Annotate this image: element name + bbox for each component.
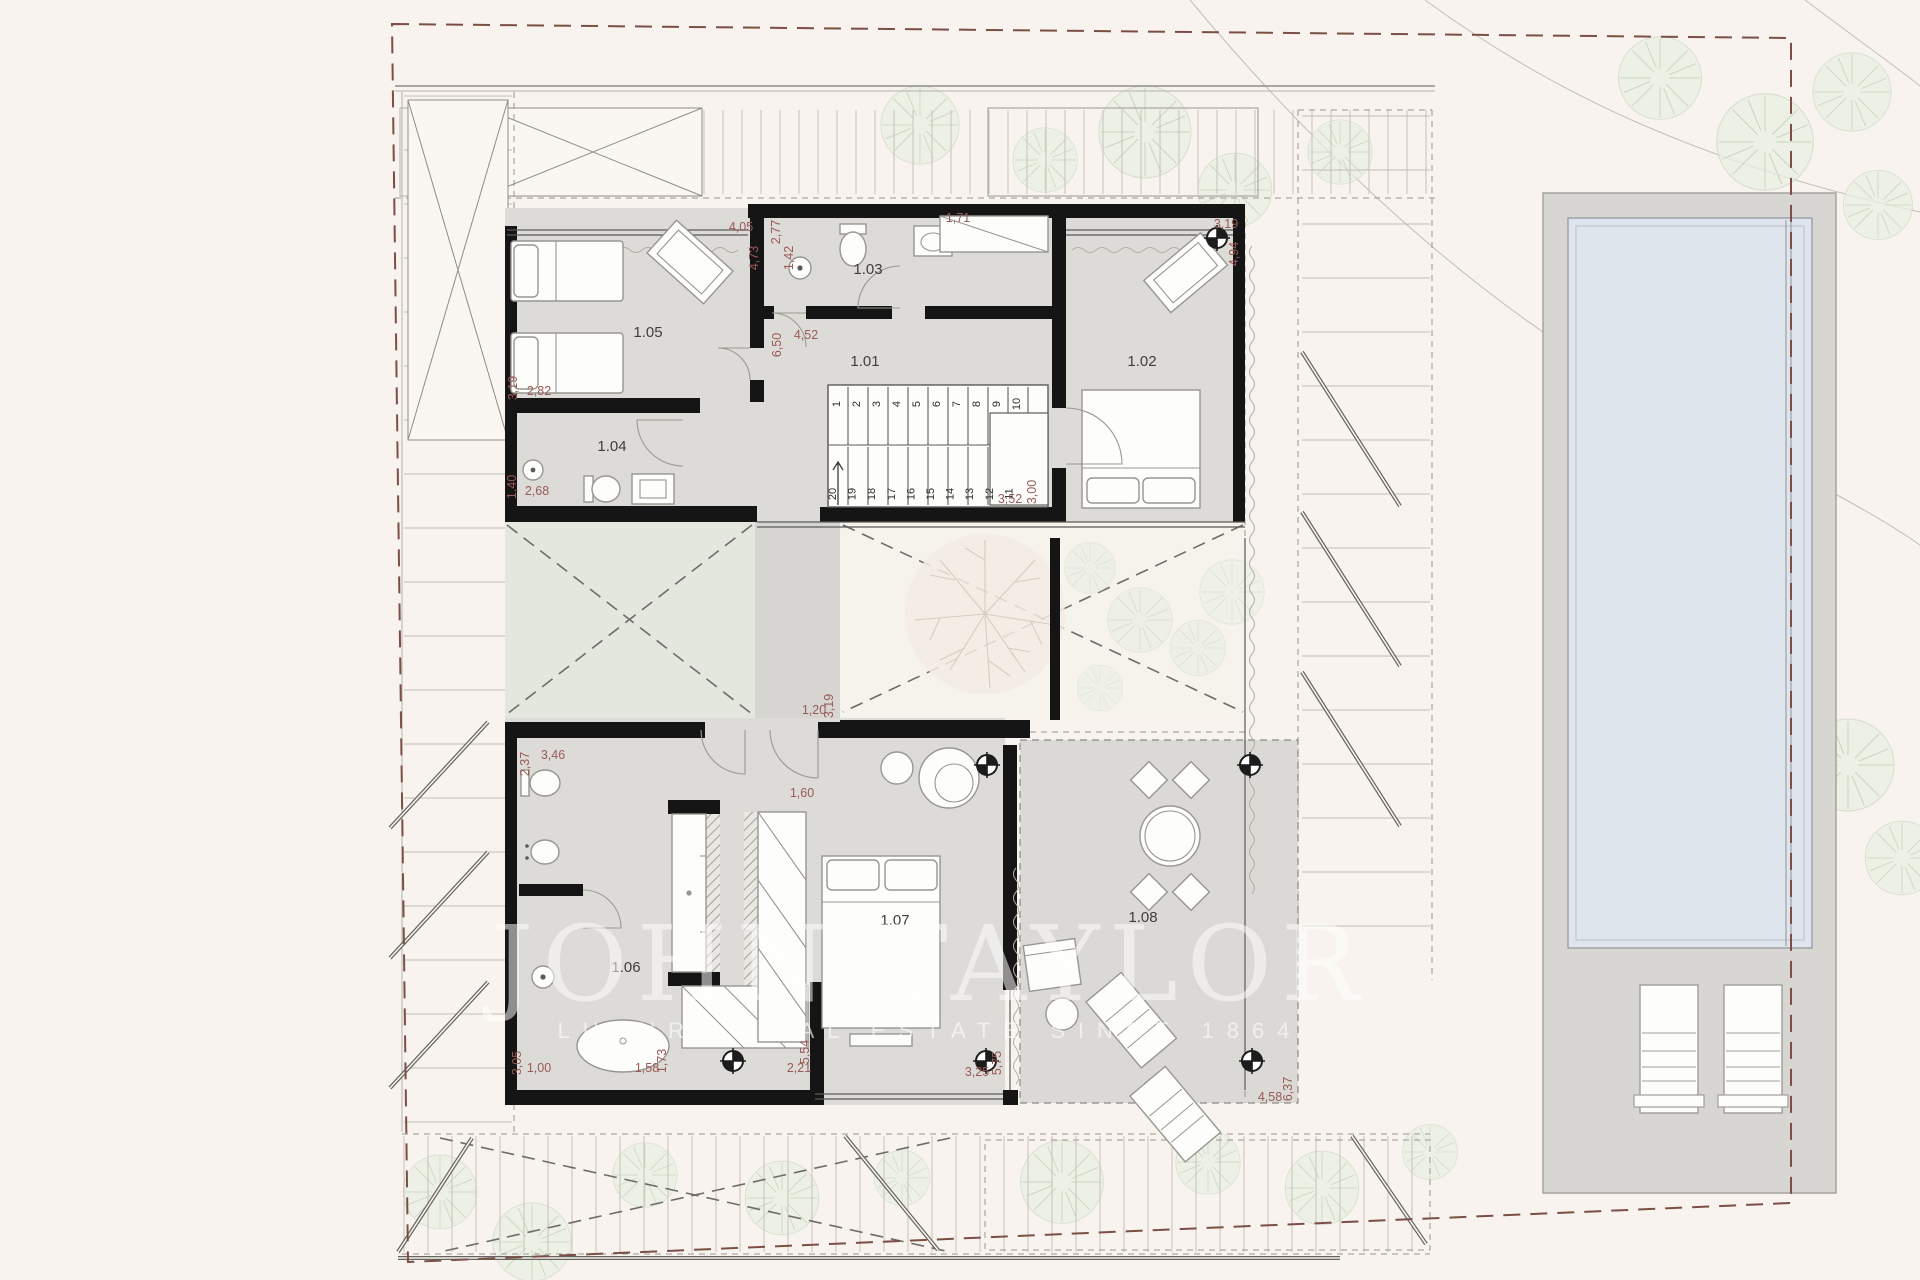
svg-text:1,73: 1,73 <box>655 1049 669 1073</box>
svg-text:1: 1 <box>831 401 843 407</box>
svg-text:4,94: 4,94 <box>1227 242 1241 266</box>
watermark-subtitle: LUXURY REAL ESTATE SINCE 1864 <box>557 1018 1302 1043</box>
svg-text:12: 12 <box>984 488 996 500</box>
svg-text:5: 5 <box>911 401 923 407</box>
svg-text:6: 6 <box>931 401 943 407</box>
svg-text:1,42: 1,42 <box>782 246 796 270</box>
armchair <box>919 748 979 808</box>
svg-text:2,21: 2,21 <box>787 1061 811 1075</box>
staircase: 1234567891020191817161514131211 <box>827 385 1048 507</box>
svg-text:3,19: 3,19 <box>822 694 836 718</box>
svg-text:1.03: 1.03 <box>853 261 882 278</box>
bed-single <box>511 241 623 301</box>
svg-text:1.01: 1.01 <box>850 353 879 370</box>
svg-text:3: 3 <box>871 401 883 407</box>
svg-text:2,82: 2,82 <box>527 384 551 398</box>
svg-text:1.05: 1.05 <box>633 324 662 341</box>
svg-text:2,37: 2,37 <box>518 752 532 776</box>
svg-text:3,19: 3,19 <box>1214 217 1238 231</box>
svg-text:14: 14 <box>945 488 957 500</box>
toilet <box>840 224 866 266</box>
svg-text:3,25: 3,25 <box>965 1065 989 1079</box>
svg-text:10: 10 <box>1011 398 1023 410</box>
pool-water <box>1568 218 1812 948</box>
svg-text:3,05: 3,05 <box>510 1051 524 1075</box>
svg-text:3,46: 3,46 <box>541 748 565 762</box>
svg-text:1,71: 1,71 <box>946 211 970 225</box>
svg-text:4,58: 4,58 <box>1258 1090 1282 1104</box>
bridge-walkway <box>755 522 840 718</box>
swimming-pool <box>1543 193 1836 1193</box>
svg-text:9: 9 <box>991 401 1003 407</box>
svg-text:1,60: 1,60 <box>790 786 814 800</box>
watermark-title: JOHN TAYLOR <box>483 903 1369 1025</box>
watermark: JOHN TAYLOR LUXURY REAL ESTATE SINCE 186… <box>483 903 1369 1043</box>
floor-plan-page: 1234567891020191817161514131211 <box>0 0 1920 1280</box>
svg-text:19: 19 <box>847 488 859 500</box>
svg-text:2,68: 2,68 <box>525 484 549 498</box>
svg-text:18: 18 <box>866 488 878 500</box>
svg-text:6,50: 6,50 <box>770 333 784 357</box>
svg-text:1,40: 1,40 <box>505 475 519 499</box>
svg-text:1.04: 1.04 <box>597 438 626 455</box>
svg-text:8: 8 <box>971 401 983 407</box>
svg-text:3,19: 3,19 <box>506 376 520 400</box>
svg-text:7: 7 <box>951 401 963 407</box>
svg-text:2,77: 2,77 <box>769 220 783 244</box>
svg-text:1,00: 1,00 <box>527 1061 551 1075</box>
svg-text:4,52: 4,52 <box>794 328 818 342</box>
svg-text:17: 17 <box>886 488 898 500</box>
svg-text:4,73: 4,73 <box>747 246 761 270</box>
svg-text:5,75: 5,75 <box>990 1051 1004 1075</box>
svg-text:4,05: 4,05 <box>729 220 753 234</box>
washbasin <box>632 474 674 504</box>
svg-text:3,52: 3,52 <box>998 492 1022 506</box>
svg-text:20: 20 <box>827 488 839 500</box>
bed-double <box>1082 390 1200 508</box>
svg-text:6,37: 6,37 <box>1281 1077 1295 1101</box>
svg-text:16: 16 <box>905 488 917 500</box>
floor-plan-canvas: 1234567891020191817161514131211 <box>0 0 1920 1280</box>
toilet <box>584 476 620 502</box>
svg-text:2: 2 <box>851 401 863 407</box>
side-table <box>881 752 913 784</box>
svg-text:13: 13 <box>964 488 976 500</box>
svg-text:3,00: 3,00 <box>1025 480 1039 504</box>
svg-text:1.02: 1.02 <box>1127 353 1156 370</box>
svg-text:15: 15 <box>925 488 937 500</box>
svg-text:4: 4 <box>891 401 903 407</box>
